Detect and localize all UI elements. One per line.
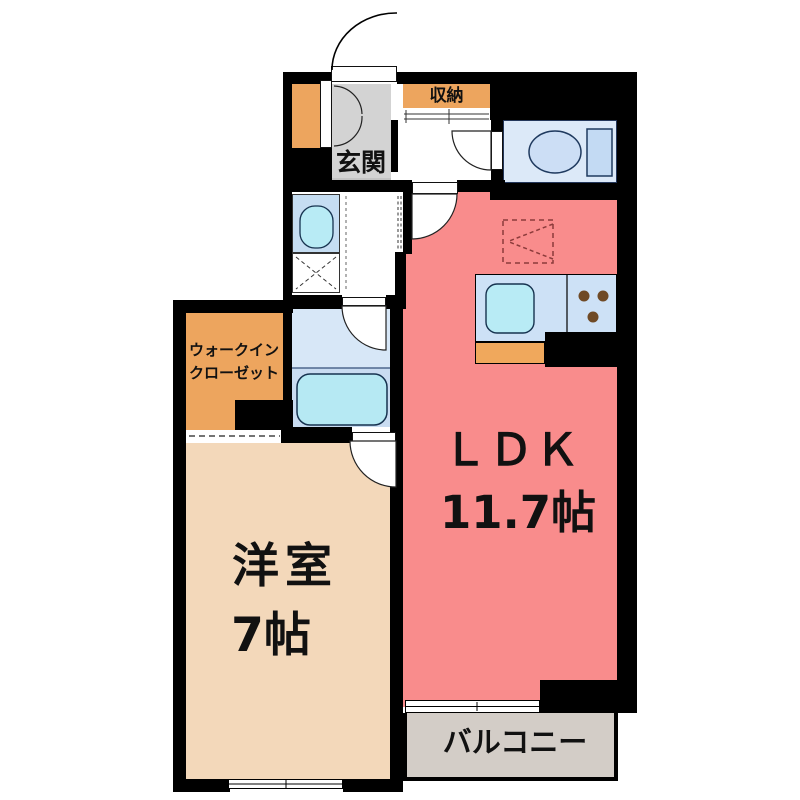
balcony-label: バルコニー: [412, 727, 618, 759]
shoe-cabinet: [292, 84, 320, 148]
bathroom-floor: [292, 307, 390, 368]
entrance-label: 玄関: [330, 149, 392, 177]
wall: [343, 779, 403, 792]
shoe-cabinet-door: [320, 80, 332, 148]
bedroom-door-leaf: [352, 432, 396, 443]
washroom-sliding-door: [398, 196, 401, 250]
balcony-rail: [403, 777, 618, 781]
wall: [391, 120, 398, 172]
walkin-closet-label-line1: ウォークイン: [189, 341, 279, 359]
toilet-room: [503, 120, 617, 183]
washbasin-unit: [292, 194, 340, 253]
storage-label: 収納: [403, 87, 490, 106]
wall: [235, 400, 293, 430]
bedroom-window: [228, 779, 343, 789]
toilet-door-leaf: [491, 131, 503, 170]
kitchen-counter-end: [475, 342, 545, 364]
wall: [283, 72, 292, 443]
wall: [545, 332, 637, 367]
ldk-door-leaf: [412, 182, 458, 194]
toilet-door-swing-icon: [452, 131, 491, 170]
wall: [281, 427, 352, 443]
front-door-leaf: [331, 66, 397, 82]
balcony-sliding-window: [405, 700, 540, 713]
wall: [491, 120, 503, 131]
walkin-closet-label: ウォークイン クローゼット: [184, 339, 284, 386]
walkin-closet-label-line2: クローゼット: [189, 364, 279, 382]
bathtub-zone: [292, 368, 390, 427]
wall: [617, 120, 637, 680]
wall: [490, 183, 637, 200]
front-door-swing-icon: [332, 13, 397, 70]
ldk-size-label: 11.7帖: [418, 488, 618, 538]
balcony-rail: [403, 713, 407, 781]
wall: [403, 192, 412, 254]
wall: [397, 72, 490, 84]
wall: [173, 779, 230, 792]
storage-shelf: [403, 108, 490, 124]
washing-machine-pan-icon: [292, 253, 340, 293]
bathroom-door-leaf: [342, 297, 386, 306]
wall: [390, 297, 403, 792]
wall: [292, 148, 332, 182]
wall: [491, 170, 503, 185]
bedroom-size-label: 7帖: [186, 610, 356, 662]
wall: [540, 680, 637, 713]
floor-plan: 収納 玄関 ウォークイン クローゼット 洋室 7帖 ＬＤＫ 11.7帖 バルコニ…: [0, 0, 800, 800]
wall: [490, 72, 637, 120]
wall: [175, 300, 293, 313]
bedroom-name-label: 洋室: [196, 541, 374, 593]
wall: [283, 180, 412, 192]
ldk-name-label: ＬＤＫ: [412, 427, 612, 475]
